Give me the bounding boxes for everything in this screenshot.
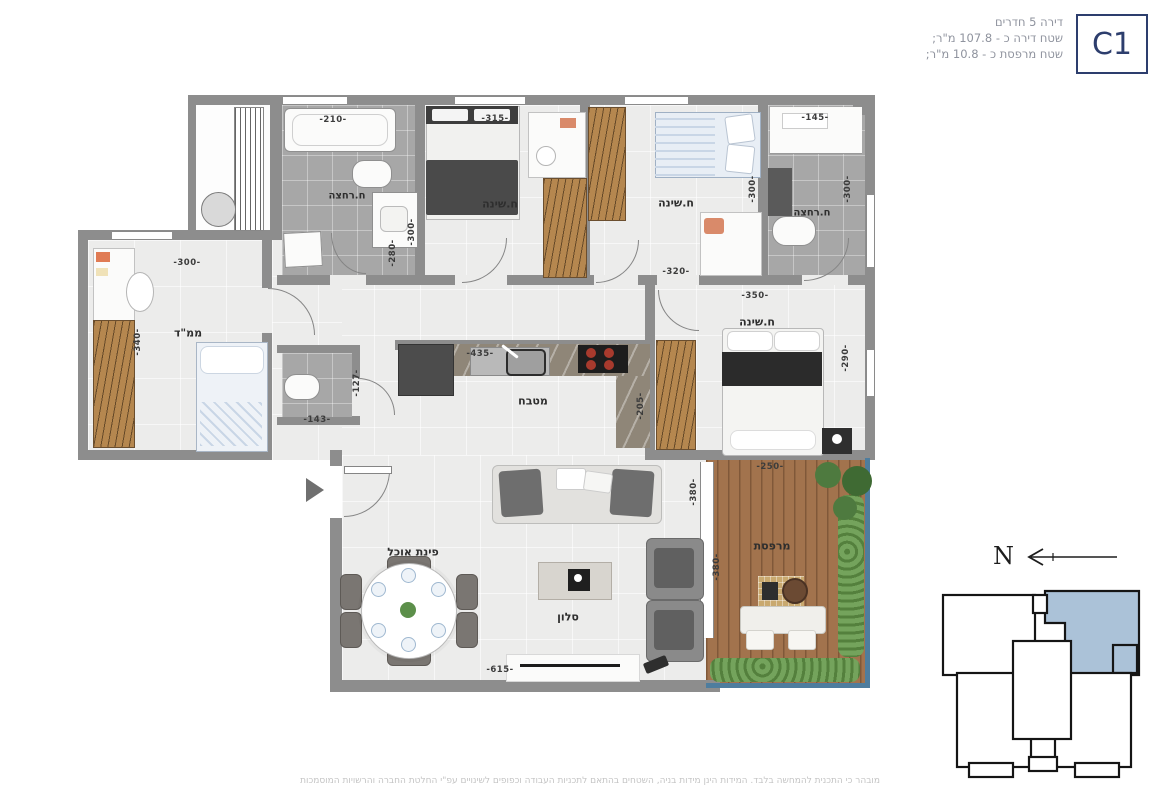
mamad-closet-accent1 <box>96 252 110 262</box>
window-bath1 <box>283 96 347 105</box>
bed1-desk <box>528 112 586 178</box>
window-bath2 <box>866 195 875 267</box>
label-balcony: מרפסת <box>754 540 791 553</box>
keyplan-highlight-detail <box>1113 645 1137 673</box>
window-mamad <box>112 231 172 240</box>
armchair-1-seat <box>654 548 694 588</box>
mamad-wardrobe <box>93 320 135 448</box>
label-mamad: ממ"ד <box>174 327 202 340</box>
mamad-closet-accent2 <box>96 268 108 276</box>
dim-kitchen-h: -205- <box>636 392 646 419</box>
dim-bed1-w: -315- <box>481 114 508 124</box>
plate-1 <box>401 568 416 583</box>
kitchen-fridge <box>398 344 454 396</box>
entry-opening <box>330 466 342 518</box>
dim-balcony-w: -250- <box>756 462 783 472</box>
toilet-bath1 <box>352 160 392 188</box>
wall-laundry-left <box>188 95 196 240</box>
window-master <box>866 350 875 396</box>
bed2-wardrobe <box>588 107 626 221</box>
dim-wc-w: -143- <box>303 415 330 425</box>
sofa-cushion-left <box>498 469 543 518</box>
dim-living-w: -615- <box>486 665 513 675</box>
balcony-side-table <box>762 582 778 600</box>
master-wardrobe <box>656 340 696 450</box>
shower-bath1 <box>283 231 323 268</box>
kitchen-stove <box>578 345 628 373</box>
master-blanket <box>722 352 822 386</box>
wall-mamad-left <box>78 230 88 460</box>
label-living: סלון <box>557 611 579 624</box>
dim-living-h: -380- <box>689 478 699 505</box>
plate-4 <box>371 623 386 638</box>
compass: N <box>985 540 1125 578</box>
dining-chair-right-bottom <box>456 612 478 648</box>
sofa-pillow-2 <box>583 470 614 494</box>
dim-bath1-h: -280- <box>388 239 398 266</box>
dim-kitchen-w: -435- <box>466 349 493 359</box>
dim-master-h: -290- <box>841 344 851 371</box>
keyplan-tab-right <box>1075 763 1119 777</box>
ac-unit <box>201 192 236 227</box>
balcony-plant-3 <box>833 496 857 520</box>
door-gap-bath1 <box>330 275 366 285</box>
keyplan-core <box>1013 641 1071 739</box>
wall-wc-top <box>277 345 360 353</box>
mamad-chair <box>126 272 154 312</box>
balcony-pouf-1 <box>746 630 774 650</box>
wall-bath1-bed1 <box>415 95 425 285</box>
plate-2 <box>401 637 416 652</box>
plan-title: דירה 5 חדרים <box>926 14 1063 30</box>
keyplan-tab-center <box>1029 757 1057 771</box>
wall-mamad-top <box>78 230 272 240</box>
stove-burner-3 <box>586 360 596 370</box>
balcony-plant-2 <box>842 466 872 496</box>
bed1-desk-accent <box>560 118 576 128</box>
armchair-2-seat <box>654 610 694 650</box>
keyplan-notch <box>1033 595 1047 613</box>
wall-laundry-right <box>270 95 282 240</box>
dining-chair-left-bottom <box>340 612 362 648</box>
entry-door-leaf <box>344 466 392 474</box>
mamad-bed-blanket <box>200 402 262 446</box>
bed2-chair <box>704 218 724 234</box>
basin-bath1 <box>380 206 408 232</box>
stove-burner-4 <box>604 360 614 370</box>
window-bed2 <box>625 96 688 105</box>
balcony-area-text: שטח מרפסת כ - 10.8 מ"ר; <box>926 46 1063 62</box>
dining-chair-right-top <box>456 574 478 610</box>
apartment-area-text: שטח דירה כ - 107.8 מ"ר; <box>926 30 1063 46</box>
master-bed-bench <box>730 430 816 450</box>
keyplan-tab-left <box>969 763 1013 777</box>
master-pillow-right <box>774 331 820 351</box>
label-bed2: ח.שינה <box>658 197 694 210</box>
label-dining: פינת אוכל <box>387 546 438 559</box>
bed2-pillow-top <box>724 113 756 145</box>
stove-burner-1 <box>586 348 596 358</box>
plan-header: דירה 5 חדרים שטח דירה כ - 107.8 מ"ר; שטח… <box>926 14 1063 62</box>
balcony-plant-1 <box>815 462 841 488</box>
plate-3 <box>371 582 386 597</box>
mamad-bed-pillow <box>200 346 264 374</box>
dining-chair-left-top <box>340 574 362 610</box>
label-bed1: ח.שינה <box>482 198 518 211</box>
tv-screen <box>520 664 620 667</box>
master-nightstand-item <box>832 434 842 444</box>
laundry-louvers <box>234 107 264 231</box>
bed2-pillow-bottom <box>725 144 756 175</box>
dim-bath2-w: -145- <box>801 113 828 123</box>
dim-bath1-w: -210- <box>319 115 346 125</box>
dim-bath2-h: -300- <box>843 175 853 202</box>
plate-6 <box>431 623 446 638</box>
master-pillow-left <box>727 331 773 351</box>
dim-bed2-w: -320- <box>662 267 689 277</box>
label-bath1: ח.רחצה <box>329 191 366 202</box>
bed1-chair <box>536 146 556 166</box>
label-master: ח.שינה <box>739 316 775 329</box>
dim-balcony-h: -380- <box>712 553 722 580</box>
dim-mamad-h: -340- <box>133 328 143 355</box>
balcony-pouf-2 <box>788 630 816 650</box>
dim-bed2-h: -300- <box>748 175 758 202</box>
tv-console <box>506 654 640 682</box>
plate-5 <box>431 582 446 597</box>
balcony-rail-bottom <box>706 683 870 688</box>
bed2-blanket <box>655 112 715 176</box>
north-arrow-icon <box>985 540 1125 578</box>
label-bath2: ח.רחצה <box>794 208 831 219</box>
coffee-table-vase <box>574 574 582 582</box>
label-kitchen: מטבח <box>518 395 548 408</box>
dining-centerpiece <box>400 602 416 618</box>
toilet-wc <box>284 374 320 400</box>
entry-arrow <box>306 478 324 502</box>
toilet-bath2 <box>772 216 816 246</box>
dim-master-w: -350- <box>741 291 768 301</box>
sofa-pillow-1 <box>556 468 586 490</box>
stove-burner-2 <box>604 348 614 358</box>
balcony-round-table <box>782 578 808 604</box>
dim-bed1-h: -300- <box>407 218 417 245</box>
unit-badge: C1 <box>1076 14 1148 74</box>
sofa-cushion-right <box>609 469 654 518</box>
dim-wc-h: -127- <box>352 369 362 396</box>
window-bed1 <box>455 96 525 105</box>
cabinet-bath2 <box>768 168 792 216</box>
dim-mamad-w: -300- <box>173 258 200 268</box>
keyplan <box>933 583 1153 783</box>
bed1-pillow-left <box>432 109 468 121</box>
bed1-wardrobe <box>543 178 587 278</box>
balcony-hedge-bottom <box>710 658 860 682</box>
